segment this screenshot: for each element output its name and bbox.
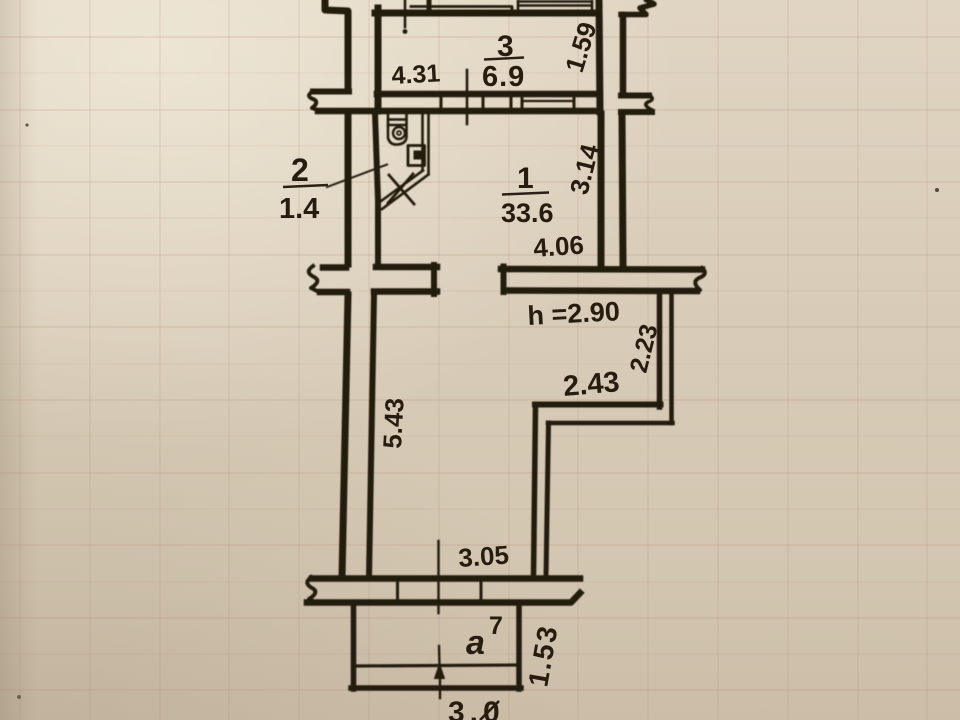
svg-text:a: a xyxy=(466,624,485,662)
svg-text:5.43: 5.43 xyxy=(377,397,410,449)
svg-text:7: 7 xyxy=(489,612,503,640)
svg-text:3.05: 3.05 xyxy=(457,540,510,573)
svg-text:4.31: 4.31 xyxy=(391,59,441,90)
svg-text:2: 2 xyxy=(291,152,309,188)
svg-text:3.0: 3.0 xyxy=(448,696,505,720)
svg-text:33.6: 33.6 xyxy=(501,198,554,228)
svg-text:2.43: 2.43 xyxy=(562,366,621,403)
svg-text:h =2.90: h =2.90 xyxy=(527,296,621,331)
svg-text:4.06: 4.06 xyxy=(532,230,585,263)
svg-text:6.9: 6.9 xyxy=(482,61,525,93)
svg-text:1.4: 1.4 xyxy=(279,193,319,225)
svg-text:1: 1 xyxy=(517,162,534,195)
